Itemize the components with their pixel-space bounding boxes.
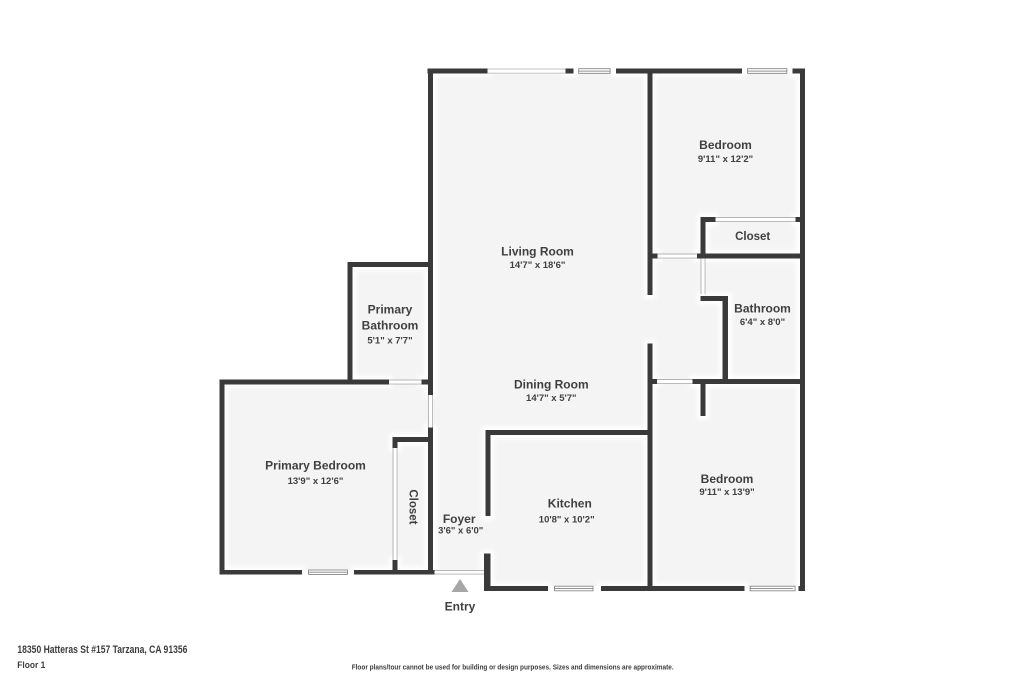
svg-text:Dining Room: Dining Room: [514, 377, 589, 391]
svg-text:9'11" x 12'2": 9'11" x 12'2": [698, 154, 753, 165]
svg-text:Entry: Entry: [445, 599, 476, 613]
svg-text:13'9" x 12'6": 13'9" x 12'6": [288, 476, 344, 487]
svg-text:Primary Bedroom: Primary Bedroom: [265, 458, 366, 472]
svg-text:14'7" x 18'6": 14'7" x 18'6": [510, 260, 566, 271]
svg-text:Foyer: Foyer: [443, 512, 476, 526]
svg-text:Bathroom: Bathroom: [362, 318, 419, 332]
svg-text:18350 Hatteras St #157 Tarzana: 18350 Hatteras St #157 Tarzana, CA 91356: [17, 644, 187, 656]
svg-text:Kitchen: Kitchen: [548, 496, 592, 510]
svg-text:Living Room: Living Room: [501, 244, 574, 258]
svg-text:Bathroom: Bathroom: [734, 301, 791, 315]
svg-text:6'4" x 8'0": 6'4" x 8'0": [740, 317, 785, 328]
svg-text:Closet: Closet: [735, 231, 770, 243]
svg-text:9'11" x 13'9": 9'11" x 13'9": [699, 487, 754, 498]
svg-text:10'8" x 10'2": 10'8" x 10'2": [539, 514, 595, 525]
svg-text:Bedroom: Bedroom: [699, 138, 752, 152]
svg-text:Bedroom: Bedroom: [701, 472, 754, 486]
svg-text:Floor 1: Floor 1: [17, 660, 46, 671]
svg-text:Primary: Primary: [368, 303, 413, 317]
svg-text:Closet: Closet: [407, 489, 419, 524]
svg-text:Floor plans/tour cannot be use: Floor plans/tour cannot be used for buil…: [352, 665, 674, 672]
svg-text:14'7" x 5'7": 14'7" x 5'7": [526, 393, 577, 404]
svg-text:3'6" x 6'0": 3'6" x 6'0": [438, 526, 483, 537]
svg-text:5'1" x 7'7": 5'1" x 7'7": [367, 335, 412, 346]
